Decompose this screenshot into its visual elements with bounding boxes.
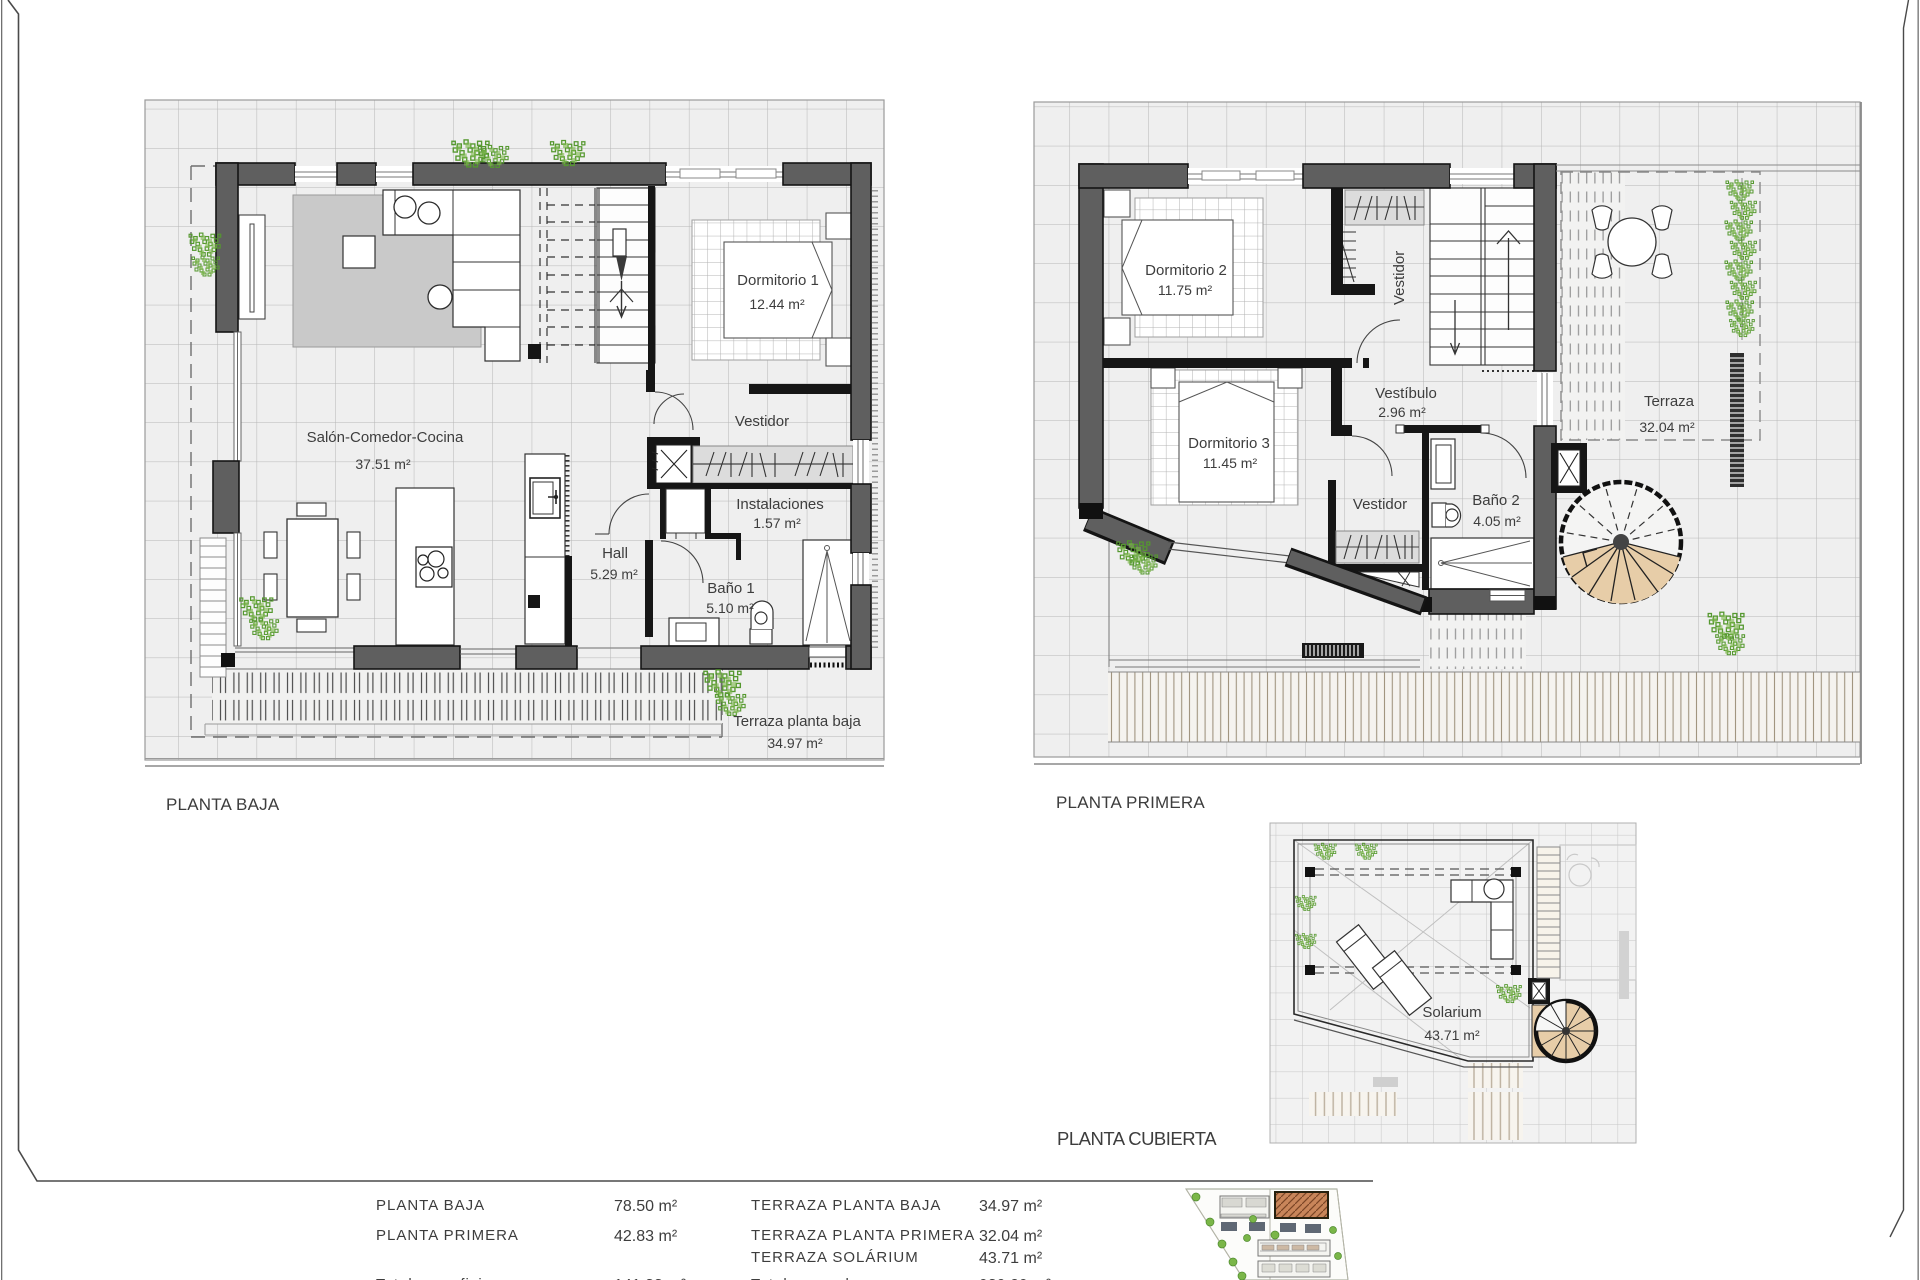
- svg-text:Salón-Comedor-Cocina: Salón-Comedor-Cocina: [307, 429, 464, 446]
- svg-text:42.83 m²: 42.83 m²: [614, 1228, 678, 1245]
- svg-text:37.51 m²: 37.51 m²: [355, 456, 411, 472]
- svg-text:Baño 1: Baño 1: [707, 580, 755, 597]
- svg-text:11.45 m²: 11.45 m²: [1203, 455, 1258, 471]
- svg-text:Instalaciones: Instalaciones: [736, 496, 824, 513]
- svg-text:PLANTA PRIMERA: PLANTA PRIMERA: [376, 1227, 519, 1244]
- svg-text:Vestíbulo: Vestíbulo: [1375, 385, 1437, 402]
- svg-text:4.05 m²: 4.05 m²: [1473, 513, 1521, 529]
- svg-text:Terraza planta baja: Terraza planta baja: [733, 713, 861, 730]
- svg-text:PLANTA CUBIERTA: PLANTA CUBIERTA: [1057, 1128, 1217, 1149]
- svg-text:32.04 m²: 32.04 m²: [1639, 419, 1695, 435]
- svg-text:TERRAZA PLANTA BAJA: TERRAZA PLANTA BAJA: [751, 1197, 941, 1214]
- svg-text:PLANTA BAJA: PLANTA BAJA: [376, 1197, 485, 1214]
- svg-text:1.57 m²: 1.57 m²: [753, 515, 801, 531]
- svg-text:5.29 m²: 5.29 m²: [590, 566, 638, 582]
- svg-text:11.75 m²: 11.75 m²: [1158, 282, 1213, 298]
- svg-text:12.44 m²: 12.44 m²: [749, 296, 805, 312]
- svg-text:78.50 m²: 78.50 m²: [614, 1198, 678, 1215]
- svg-text:Dormitorio 3: Dormitorio 3: [1188, 435, 1270, 452]
- svg-text:PLANTA BAJA: PLANTA BAJA: [166, 795, 280, 814]
- svg-text:Terraza: Terraza: [1644, 393, 1695, 410]
- svg-text:2.96 m²: 2.96 m²: [1378, 404, 1426, 420]
- svg-text:Solarium: Solarium: [1422, 1004, 1481, 1021]
- svg-text:Vestidor: Vestidor: [735, 413, 789, 430]
- svg-text:Vestidor: Vestidor: [1353, 496, 1407, 513]
- svg-text:PLANTA PRIMERA: PLANTA PRIMERA: [1056, 793, 1205, 812]
- svg-text:Total superficie: Total superficie: [376, 1276, 492, 1280]
- svg-text:Total general: Total general: [751, 1276, 850, 1280]
- svg-text:34.97 m²: 34.97 m²: [767, 735, 823, 751]
- svg-text:Dormitorio 1: Dormitorio 1: [737, 272, 819, 289]
- svg-text:TERRAZA SOLÁRIUM: TERRAZA SOLÁRIUM: [751, 1249, 919, 1266]
- svg-text:Vestidor: Vestidor: [1391, 251, 1408, 305]
- svg-text:43.71 m²: 43.71 m²: [1424, 1027, 1480, 1043]
- svg-text:Dormitorio 2: Dormitorio 2: [1145, 262, 1227, 279]
- svg-text:5.10 m²: 5.10 m²: [706, 600, 754, 616]
- svg-text:43.71 m²: 43.71 m²: [979, 1250, 1043, 1267]
- svg-text:TERRAZA PLANTA PRIMERA: TERRAZA PLANTA PRIMERA: [751, 1227, 975, 1244]
- svg-text:Baño 2: Baño 2: [1472, 492, 1520, 509]
- svg-text:32.04 m²: 32.04 m²: [979, 1228, 1043, 1245]
- svg-text:Hall: Hall: [602, 545, 628, 562]
- svg-text:34.97 m²: 34.97 m²: [979, 1198, 1043, 1215]
